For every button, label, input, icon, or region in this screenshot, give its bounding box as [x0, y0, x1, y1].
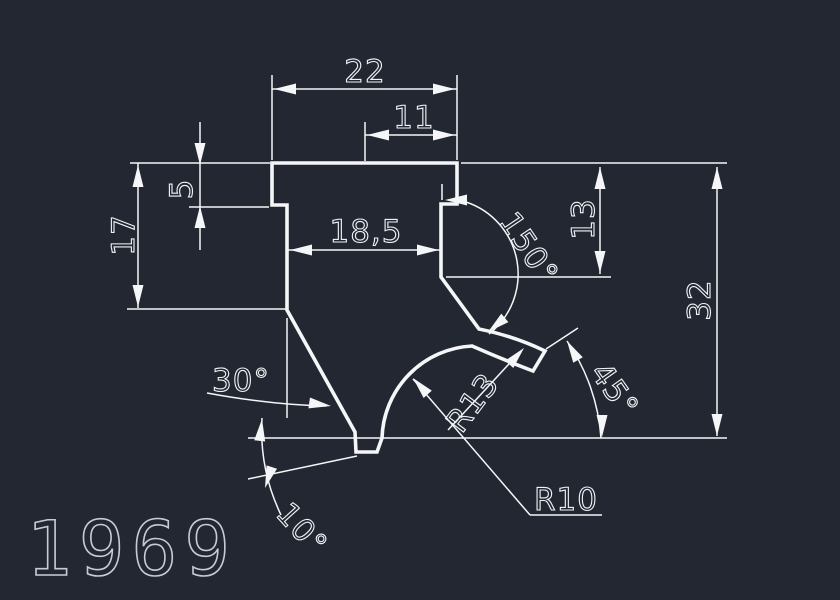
- arrowhead: [417, 245, 439, 256]
- profile-path: [272, 163, 545, 452]
- arrowhead: [133, 285, 144, 307]
- arrowhead: [195, 206, 206, 228]
- arrowhead: [433, 84, 455, 95]
- angle-150: 150°: [445, 195, 565, 337]
- arrowhead: [595, 167, 606, 189]
- radius-r10-label: R10: [534, 482, 598, 518]
- dim-18-5-label: 18,5: [329, 214, 402, 250]
- dimension-13: 13: [446, 163, 727, 277]
- part-number: 1969: [26, 504, 237, 593]
- arrowhead: [274, 84, 296, 95]
- angle-45: 45°: [546, 328, 646, 438]
- angle-150-label: 150°: [491, 206, 565, 291]
- arrowhead: [308, 397, 331, 411]
- cad-drawing: 22 11 5 17 18,5 13: [0, 0, 840, 600]
- arrowhead: [260, 465, 277, 489]
- cad-viewport[interactable]: 22 11 5 17 18,5 13: [0, 0, 840, 600]
- arrowhead: [712, 167, 723, 189]
- arrowhead: [195, 143, 206, 165]
- arrowhead: [562, 338, 583, 363]
- arrowhead: [409, 374, 432, 398]
- arrowhead: [133, 165, 144, 187]
- ext-line: [546, 328, 578, 349]
- angle-45-label: 45°: [583, 356, 646, 424]
- angle-30: 30°: [207, 318, 332, 418]
- radius-r10: R10: [409, 374, 602, 518]
- dim-arc: [262, 418, 281, 515]
- arrowhead: [290, 245, 312, 256]
- dimension-18-5: 18,5: [288, 214, 441, 256]
- angle-30-label: 30°: [212, 363, 270, 399]
- dimension-5: 5: [130, 122, 270, 250]
- dim-11-label: 11: [393, 100, 434, 136]
- dim-22-label: 22: [344, 54, 385, 90]
- arrowhead: [367, 130, 389, 141]
- part-number-label: 1969: [26, 504, 237, 593]
- arrowhead: [597, 415, 608, 437]
- arrowhead: [433, 130, 455, 141]
- arrowhead: [595, 251, 606, 273]
- dim-5-label: 5: [164, 179, 200, 200]
- dimension-11: 11: [365, 100, 457, 200]
- dim-13-label: 13: [566, 198, 602, 239]
- angle-10-label: 10°: [269, 496, 335, 563]
- dim-17-label: 17: [106, 214, 142, 255]
- angle-10: 10°: [248, 418, 357, 563]
- dim-32-label: 32: [682, 279, 718, 320]
- profile-outline: [272, 163, 545, 452]
- arrowhead: [712, 414, 723, 436]
